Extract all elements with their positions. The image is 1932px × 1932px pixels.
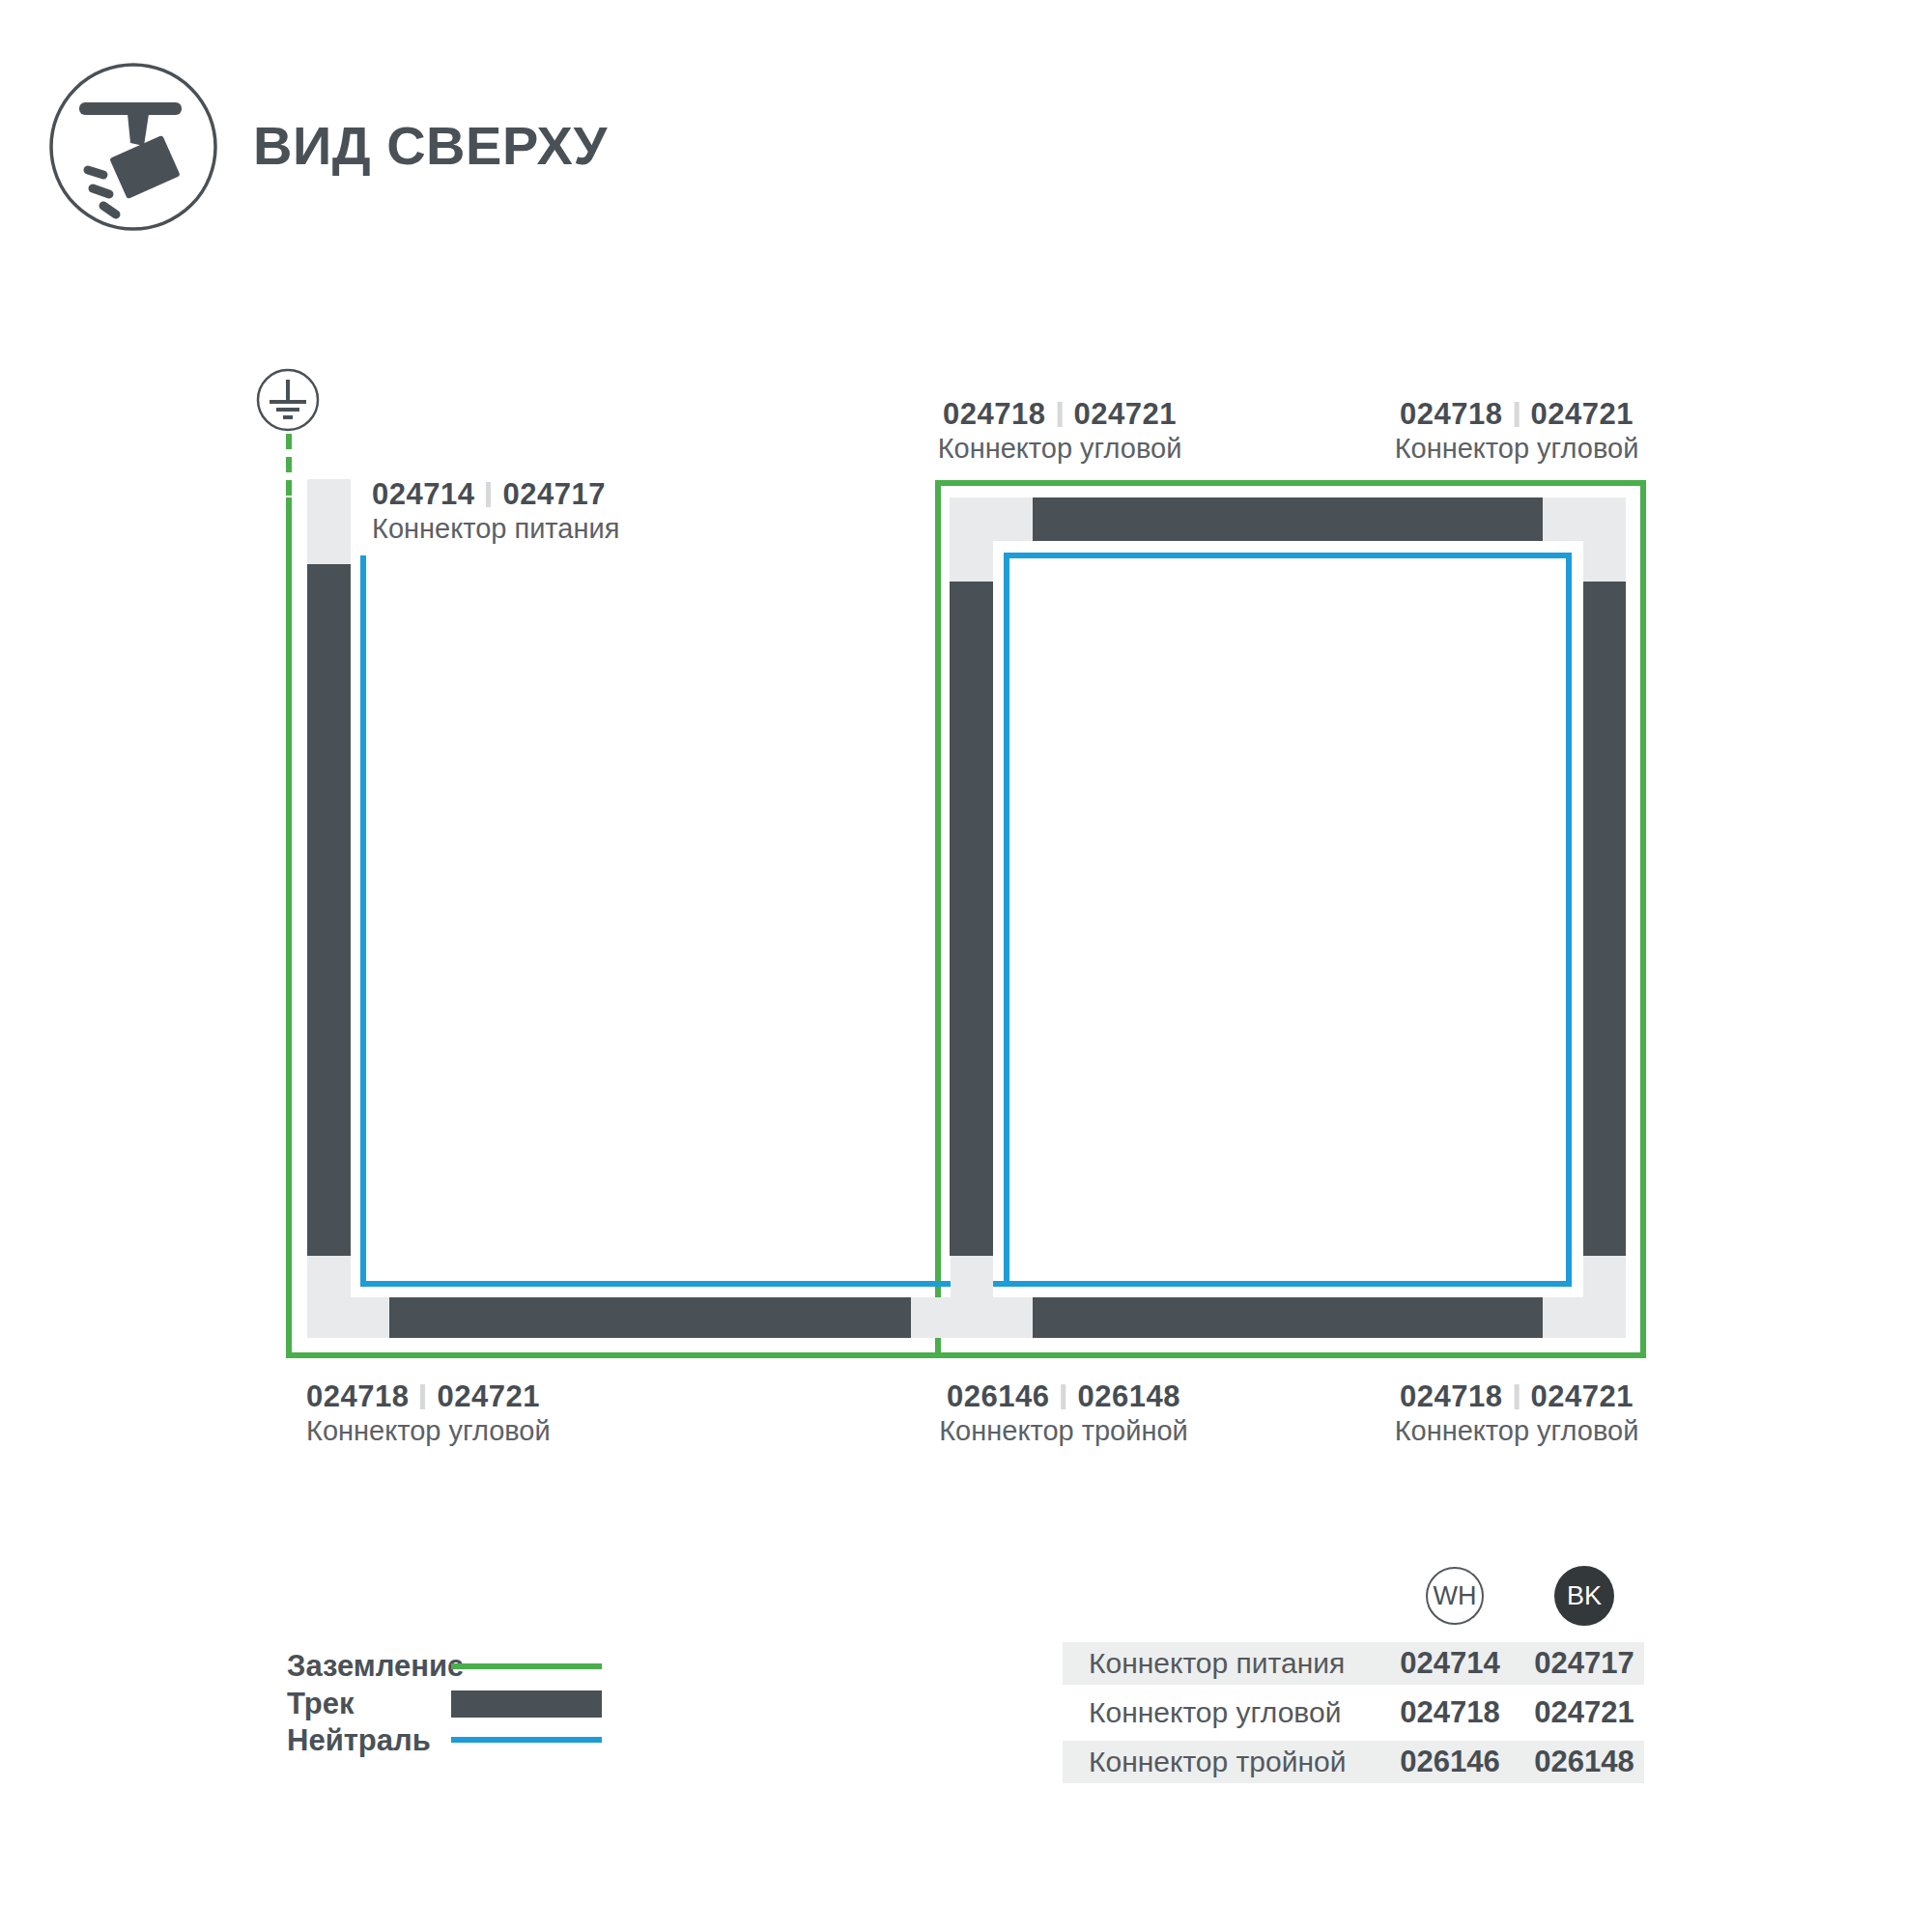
legend-label-ground: Заземление [287,1651,464,1682]
track-loop-bottom [1033,1297,1543,1338]
legend-label-neutral: Нейтраль [287,1725,431,1756]
label-divider [1057,402,1062,427]
legend-neutral-swatch [451,1737,602,1743]
row-bk-code: 024721 [1507,1691,1662,1734]
label-power-connector: 024714024717 Коннектор питания [372,479,619,543]
track-feed-bottom-horizontal [389,1297,911,1338]
table-row: Коннектор тройной 026146 026148 [1063,1741,1644,1783]
label-corner-top-left: 024718024721 Коннектор угловой [938,399,1182,463]
neutral-wire-left-vertical [360,555,366,1287]
label-divider [1514,402,1519,427]
legend-ground-swatch [451,1663,602,1669]
table-row: Коннектор угловой 024718 024721 [1063,1691,1644,1734]
label-divider [420,1384,425,1409]
neutral-wire-bottom-horizontal [360,1281,1009,1287]
corner-connector-top-right-piece [1583,541,1626,582]
label-divider [1061,1384,1065,1409]
row-name: Коннектор угловой [1089,1691,1341,1734]
corner-connector-top-left-piece [950,497,1033,541]
ground-wire-dashed [286,434,292,497]
row-bk-code: 026148 [1507,1741,1662,1783]
track-loop-right [1583,582,1626,1256]
row-bk-code: 024717 [1507,1642,1662,1685]
color-badge-black: BK [1554,1566,1614,1626]
track-loop-left [950,582,993,1256]
label-triple-connector: 026146026148 Коннектор тройной [939,1381,1188,1445]
power-connector-piece [307,479,351,564]
track-spotlight-icon [37,50,230,243]
row-wh-code: 024714 [1373,1642,1527,1685]
ground-symbol-icon [254,366,322,434]
row-name: Коннектор питания [1089,1642,1345,1685]
ground-wire-left-vertical [286,497,292,1358]
corner-connector-top-left-piece [950,541,993,582]
corner-connector-bottom-left-piece [307,1256,351,1297]
label-divider [1514,1384,1519,1409]
triple-connector-piece [951,1256,993,1297]
label-corner-top-right: 024718024721 Коннектор угловой [1395,399,1639,463]
corner-connector-bottom-left-piece [307,1297,389,1338]
color-badge-white: WH [1426,1567,1484,1625]
corner-connector-top-right-piece [1543,497,1626,541]
corner-connector-bottom-right-piece [1543,1297,1626,1338]
row-wh-code: 024718 [1373,1691,1527,1734]
track-loop-top [1033,497,1543,541]
page: ВИД СВЕРХУ 024714024717 Коннектор [0,0,1932,1932]
row-name: Коннектор тройной [1089,1741,1346,1783]
corner-connector-bottom-right-piece [1583,1256,1626,1297]
legend-label-track: Трек [287,1689,354,1719]
legend-track-swatch [451,1690,602,1718]
triple-connector-piece [911,1297,1033,1338]
label-corner-bottom-right: 024718024721 Коннектор угловой [1395,1381,1639,1445]
label-corner-bottom-left: 024718024721 Коннектор угловой [306,1381,551,1445]
track-feed-left-vertical [307,564,351,1256]
label-divider [486,482,491,507]
row-wh-code: 026146 [1373,1741,1527,1783]
page-title: ВИД СВЕРХУ [253,114,608,177]
table-row: Коннектор питания 024714 024717 [1063,1642,1644,1685]
neutral-wire-loop-outline [1004,553,1572,1287]
